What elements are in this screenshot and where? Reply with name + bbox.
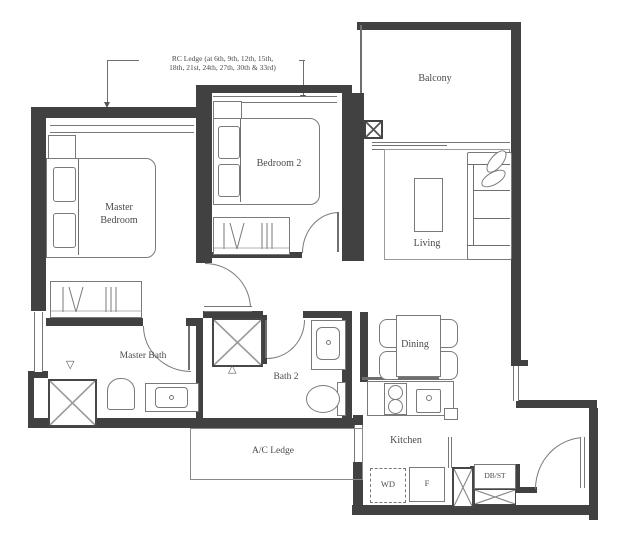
door-sill [204, 306, 252, 312]
leader-line [107, 60, 108, 103]
fridge-label: F [410, 478, 444, 489]
leader-line [107, 60, 139, 61]
toilet [306, 385, 340, 413]
triangle-down-icon: ▽ [66, 359, 74, 370]
window [34, 312, 43, 372]
triangle-up-icon: △ [228, 363, 236, 374]
pillow [53, 213, 76, 248]
sofa-armrest-line [467, 245, 510, 246]
wall-segment [589, 408, 598, 520]
burner-icon [388, 399, 403, 414]
nightstand [48, 135, 76, 159]
rc-ledge-note-line2: 18th, 21st, 24th, 27th, 30th & 33rd) [169, 63, 276, 72]
shaft-x-box [452, 467, 474, 508]
door-arc [143, 326, 191, 372]
floor-plan: RC Ledge (at 6th, 9th, 12th, 15th, 18th,… [0, 0, 618, 537]
room-label-ac-ledge: A/C Ledge [233, 446, 313, 458]
dining-chair [438, 351, 458, 380]
room-label-dining: Dining [375, 339, 455, 352]
door-leaf [265, 320, 267, 358]
wall-segment [357, 22, 521, 30]
door-leaf [188, 326, 190, 370]
wall-segment [31, 107, 46, 311]
hanger-marks-icon [51, 282, 141, 317]
wall-segment [511, 25, 521, 366]
room-label-master-bath: Master Bath [103, 351, 183, 363]
rc-ledge-note-line1: RC Ledge (at 6th, 9th, 12th, 15th, [172, 54, 273, 63]
sofa-front-line [473, 164, 474, 246]
bed-headboard-line [78, 159, 79, 255]
wall-segment [203, 311, 263, 318]
room-label-balcony: Balcony [395, 73, 475, 86]
wall-segment [353, 415, 363, 425]
coffee-table [414, 178, 443, 232]
wall-segment [196, 85, 212, 263]
pillow [218, 164, 240, 197]
db-st-label: DB/ST [475, 471, 515, 480]
wall-segment [360, 312, 368, 382]
shower [48, 379, 97, 427]
door-arc [267, 320, 305, 359]
pillow [53, 167, 76, 202]
sofa-cushion-line [473, 218, 510, 219]
room-label-master-bedroom: Master Bedroom [89, 202, 149, 227]
entrance-door-arc [535, 437, 585, 489]
sink-drain-icon [169, 395, 174, 400]
toilet [107, 378, 135, 410]
room-label-bedroom2: Bedroom 2 [239, 158, 319, 171]
pipe-line [448, 437, 452, 468]
vent-x-box [474, 489, 516, 505]
washer-dryer: WD [370, 468, 406, 503]
wall-segment [46, 318, 143, 326]
sink-drain-icon [326, 340, 331, 345]
hanger-marks-icon [214, 218, 289, 254]
wall-segment [31, 107, 196, 118]
burner-icon [388, 385, 403, 400]
wall-segment [516, 400, 597, 408]
wardrobe [50, 281, 142, 318]
pillow [218, 126, 240, 159]
shower [212, 318, 263, 367]
room-label-bath2: Bath 2 [246, 372, 326, 384]
wall-segment [342, 93, 364, 261]
kitchen-sink [416, 389, 441, 413]
room-label-living: Living [387, 238, 467, 251]
sofa-cushion-line [473, 190, 510, 191]
entrance-door-leaf [580, 437, 585, 488]
window [513, 366, 519, 401]
balcony-edge-line [360, 25, 362, 93]
sliding-door-leaf [372, 145, 447, 146]
fridge: F [409, 467, 445, 502]
washer-label: WD [371, 479, 405, 490]
db-st-cabinet: DB/ST [474, 464, 516, 489]
wall-segment [352, 505, 598, 515]
nightstand [213, 101, 242, 119]
wall-segment [212, 85, 352, 93]
wardrobe [213, 217, 290, 255]
rc-ledge-note: RC Ledge (at 6th, 9th, 12th, 15th, 18th,… [140, 54, 305, 73]
window [50, 125, 194, 133]
room-label-kitchen: Kitchen [366, 435, 446, 448]
door-arc [205, 263, 251, 309]
door-leaf [337, 212, 339, 252]
sink-drain-icon [426, 395, 432, 401]
column-marker-icon [364, 120, 383, 139]
door-arc [302, 212, 339, 253]
counter-return [444, 408, 458, 420]
